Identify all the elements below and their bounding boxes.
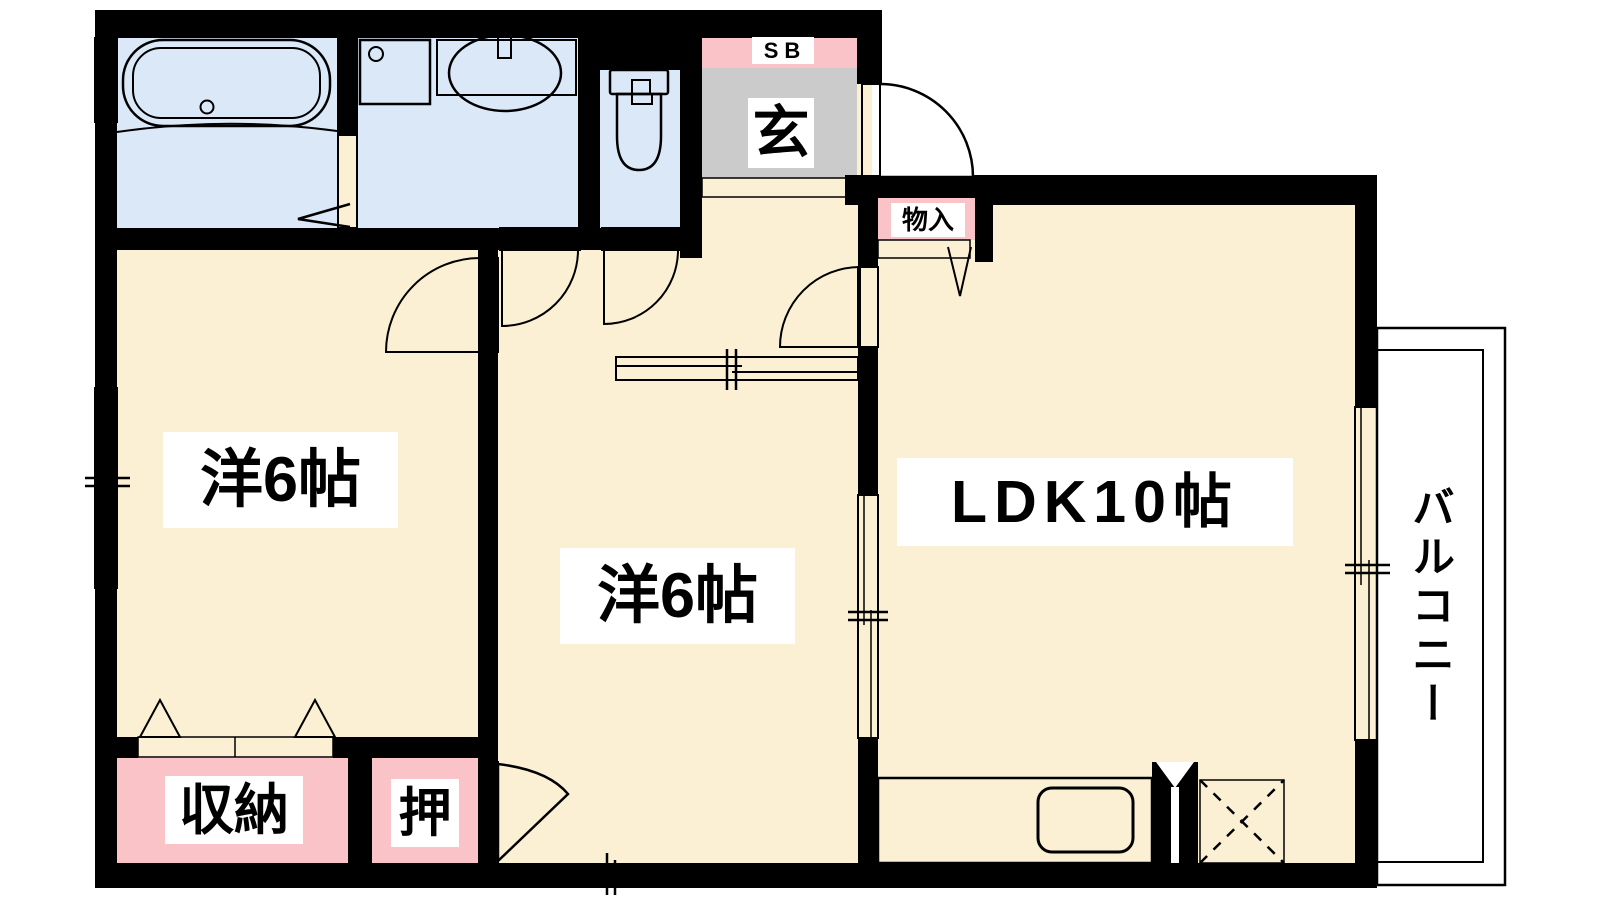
balcony-label: バルコニー — [1397, 448, 1461, 766]
front-door — [862, 84, 973, 177]
ldk-label: LDK10帖 — [897, 458, 1293, 546]
storage-compartment-label: 物入 — [891, 203, 965, 237]
shoe-box-label: SB — [752, 37, 814, 64]
floor-plan: 洋6帖 洋6帖 LDK10帖 バルコニー 玄 SB 物入 収納 押 — [0, 0, 1600, 900]
storage-label: 収納 — [165, 776, 303, 844]
room-center-label: 洋6帖 — [560, 548, 795, 644]
washroom-floor — [358, 38, 578, 228]
room-left-label: 洋6帖 — [163, 432, 398, 528]
entrance-label: 玄 — [748, 98, 814, 168]
bathroom-floor — [117, 38, 337, 228]
closet-label: 押 — [391, 779, 459, 847]
